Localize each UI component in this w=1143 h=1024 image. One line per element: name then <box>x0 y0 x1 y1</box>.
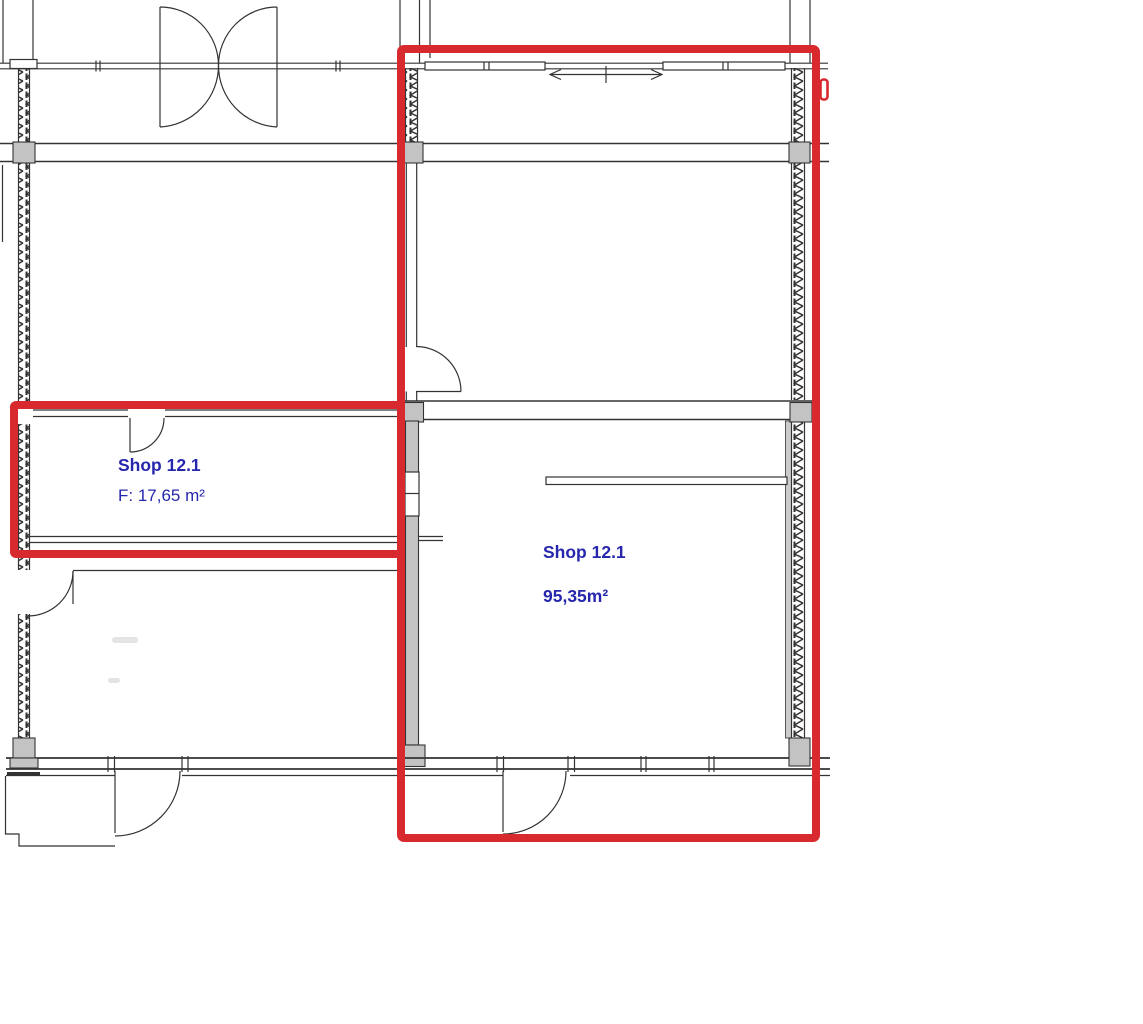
center-wall-upper <box>406 163 416 401</box>
room-label-shop-small: Shop 12.1 F: 17,65 m² <box>118 457 205 504</box>
service-counter <box>546 477 787 485</box>
room-label-shop-large: Shop 12.1 95,35m² <box>543 544 626 605</box>
floor-plan-drawing <box>0 0 1143 1024</box>
subroom-walls <box>30 410 443 543</box>
room-name: Shop 12.1 <box>543 544 626 562</box>
room-area: 95,35m² <box>543 588 626 606</box>
middle-wall <box>403 401 813 422</box>
structural-band-top <box>0 142 829 163</box>
room-name: Shop 12.1 <box>118 457 205 475</box>
door-subroom <box>130 418 164 452</box>
door-bottom-left <box>115 771 180 836</box>
room-area: F: 17,65 m² <box>118 487 205 504</box>
double-swing-door <box>160 7 277 127</box>
highlight-outline <box>14 49 828 838</box>
center-gray-wall <box>402 421 425 767</box>
door-bottom-center <box>503 771 566 834</box>
bottom-left-room <box>6 571 407 847</box>
section-marker <box>821 80 828 100</box>
smudge-mark <box>108 678 120 683</box>
floor-plan: Shop 12.1 F: 17,65 m² Shop 12.1 95,35m² <box>0 0 1143 1024</box>
smudge-mark <box>112 637 138 643</box>
door-upper-center <box>416 347 461 392</box>
